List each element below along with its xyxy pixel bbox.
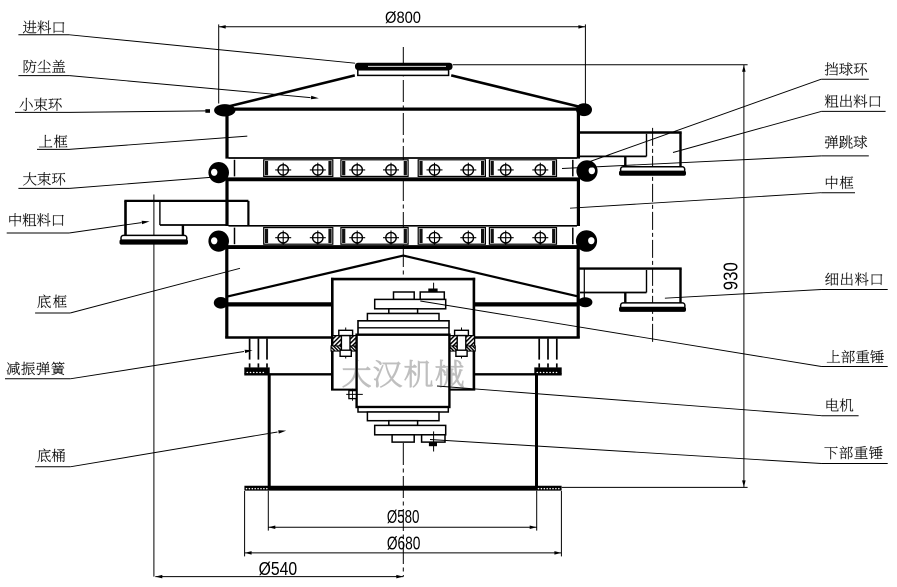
svg-text:930: 930	[721, 262, 743, 290]
svg-text:Ø800: Ø800	[385, 8, 421, 27]
svg-text:Ø580: Ø580	[387, 507, 420, 527]
svg-text:Ø680: Ø680	[387, 533, 421, 553]
svg-text:Ø540: Ø540	[259, 559, 298, 579]
